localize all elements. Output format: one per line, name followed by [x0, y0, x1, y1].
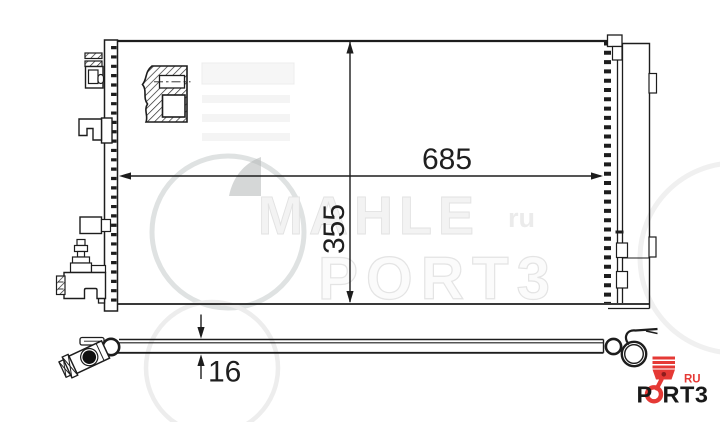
condenser-technical-drawing: MAHLE ru PORT3 [0, 0, 720, 422]
watermark-brand-text: MAHLE [258, 186, 480, 246]
height-dimension-label: 355 [318, 204, 351, 254]
width-dimension-label: 685 [422, 143, 472, 176]
valve-tag [57, 276, 66, 295]
watermark-bar [202, 95, 290, 103]
thickness-dimension-label: 16 [208, 356, 241, 389]
drier-bracket-hook-line [646, 331, 658, 334]
dimension-width: 685 [119, 143, 603, 180]
watermark-bar [202, 114, 290, 122]
port3-logo: P RT3 RU [637, 357, 709, 408]
drier-outline [611, 44, 650, 309]
tank-fitting [617, 272, 628, 289]
logo-region-text: RU [684, 374, 701, 386]
service-valve [57, 240, 106, 299]
drier-bottom-outer [622, 342, 646, 366]
fitting-cavity [163, 95, 186, 117]
fitting-cross-section [143, 66, 191, 122]
right-pipe-end [606, 339, 621, 354]
arrowhead-up [346, 42, 353, 54]
watermark-bar [202, 133, 290, 141]
watermark-region-text: ru [508, 203, 535, 233]
tank-top-tab [608, 35, 623, 47]
drier-tab [649, 237, 656, 257]
tank-top-tab [613, 47, 623, 61]
tank-mark [616, 231, 624, 234]
arrowhead-left [119, 172, 131, 179]
drier-tab [649, 74, 657, 94]
mid-left-bracket [79, 118, 112, 143]
right-tank-and-drier [608, 35, 657, 309]
watermark-site-text: PORT3 [318, 245, 558, 312]
logo-text-p: P [637, 382, 653, 408]
dimension-thickness: 16 [197, 315, 241, 389]
tank-fitting [617, 243, 628, 258]
arrowhead-down [197, 327, 204, 339]
top-left-bracket [85, 53, 104, 88]
arrowhead-right [591, 172, 603, 179]
left-side-plate [105, 40, 118, 311]
arrowhead-up [197, 354, 204, 366]
watermark-bar [202, 63, 294, 84]
watermark-circle [640, 163, 720, 353]
pipe-connection-block [80, 217, 111, 234]
